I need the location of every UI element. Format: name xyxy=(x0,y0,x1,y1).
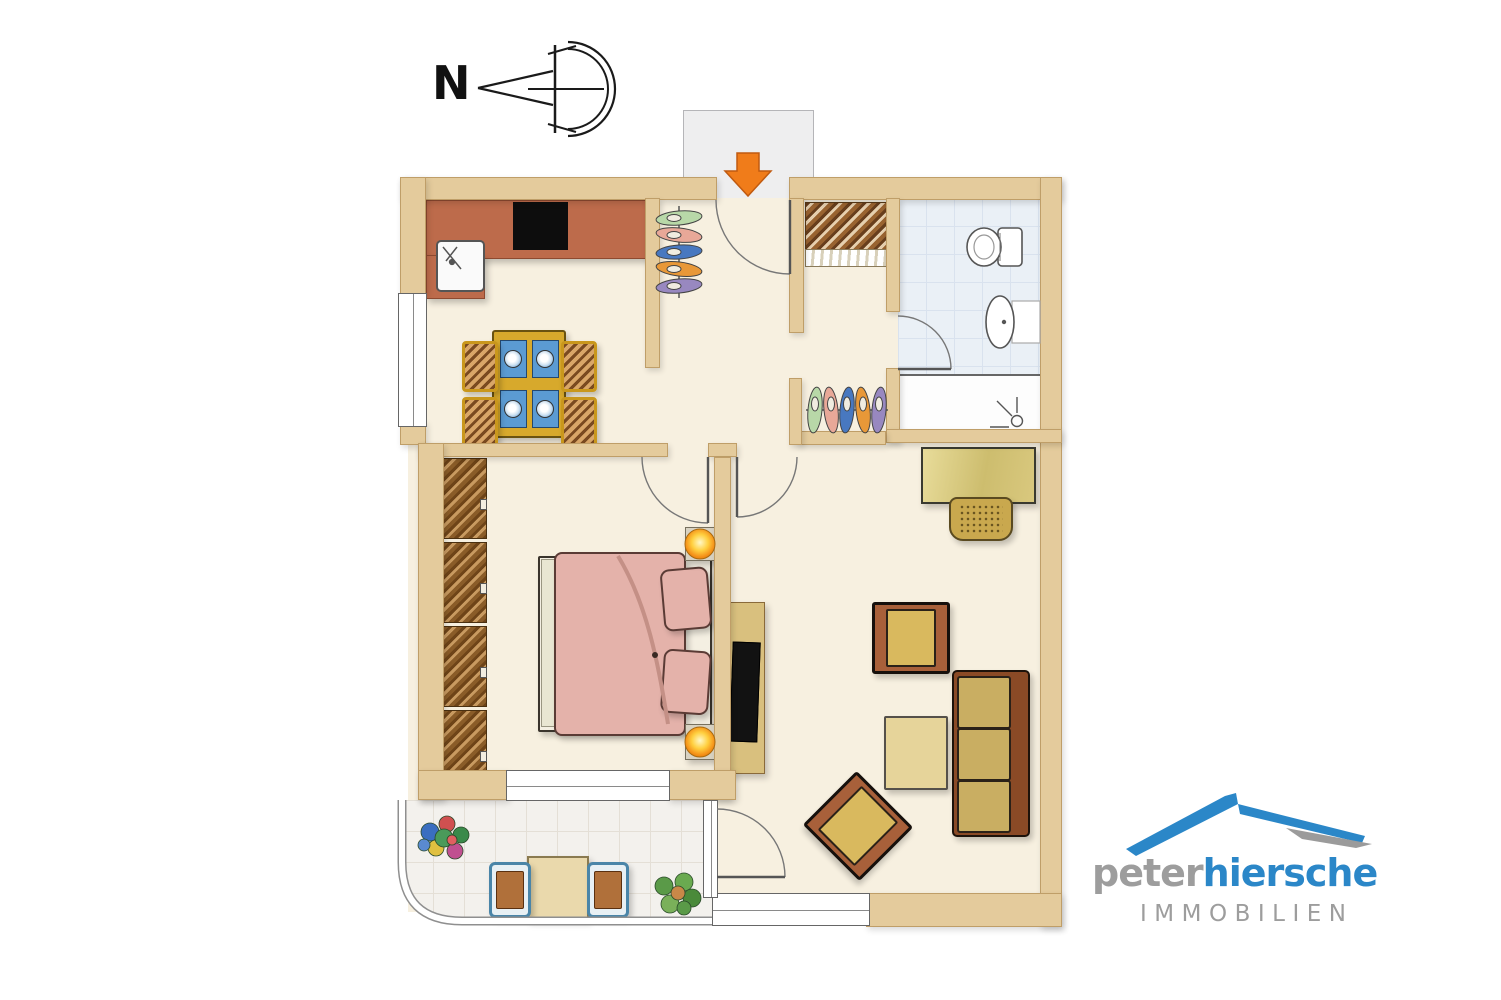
nightstand xyxy=(685,527,717,561)
wall-entry-right xyxy=(789,198,804,333)
desk-chair-back xyxy=(959,504,1003,534)
wall-bedroom-top xyxy=(418,443,668,457)
plate xyxy=(536,350,554,368)
wall-bedroom-bottom-left xyxy=(418,770,508,800)
floorplan-page: N xyxy=(0,0,1501,1000)
coffee-table xyxy=(884,716,948,790)
sofa xyxy=(952,670,1030,837)
dining-chair xyxy=(462,397,498,448)
armchair-cushion xyxy=(886,609,936,667)
balcony-chair-seat xyxy=(594,871,622,909)
tv-screen xyxy=(729,642,760,743)
kitchen-sink xyxy=(436,240,485,292)
place-setting xyxy=(500,390,527,428)
wall-top-right xyxy=(789,177,1062,200)
dining-chair xyxy=(561,341,597,392)
dining-chair xyxy=(462,341,498,392)
sofa-cushion xyxy=(957,676,1011,729)
wall-hall-bath-upper xyxy=(886,198,900,312)
wall-shoe-nook xyxy=(789,378,802,445)
plate xyxy=(536,400,554,418)
balcony-chair xyxy=(489,862,531,918)
brand-roof-icon xyxy=(1126,793,1372,856)
armchair xyxy=(872,602,950,674)
place-setting xyxy=(532,340,559,378)
wall-bedroom-bottom-right xyxy=(668,770,736,800)
living-room-window xyxy=(712,893,870,926)
bed-pillow xyxy=(660,648,712,715)
shower-area xyxy=(898,374,1042,432)
bathroom-floor xyxy=(898,198,1042,374)
wall-top-left xyxy=(400,177,717,200)
balcony-table xyxy=(527,856,589,920)
place-setting xyxy=(532,390,559,428)
stove-cooktop xyxy=(513,202,568,250)
brand-wordmark: peterhiersche xyxy=(1092,851,1377,895)
bed-pillow xyxy=(659,566,712,632)
compass-north-arrow-icon xyxy=(478,42,615,136)
wall-right-outer xyxy=(1040,177,1062,927)
compass-north-label: N xyxy=(432,56,471,110)
wall-bedroom-left xyxy=(418,443,444,800)
plate xyxy=(504,400,522,418)
balcony-chair-seat xyxy=(496,871,524,909)
sofa-cushion xyxy=(957,780,1011,833)
wall-center-cap xyxy=(708,443,737,457)
sofa-cushion xyxy=(957,728,1011,781)
nightstand xyxy=(685,724,717,760)
wall-living-bottom xyxy=(866,893,1062,927)
dining-table xyxy=(492,330,566,438)
wall-bath-bottom xyxy=(886,429,1062,443)
balcony-door-sidelight xyxy=(703,800,718,898)
brand-word-peter: peter xyxy=(1092,851,1203,895)
wall-bedroom-living xyxy=(714,457,731,800)
bedroom-window xyxy=(506,770,670,801)
brand-word-hiersche: hiersche xyxy=(1203,851,1378,895)
place-setting xyxy=(500,340,527,378)
wall-left-upper xyxy=(400,177,426,295)
desk xyxy=(921,447,1036,504)
plate xyxy=(504,350,522,368)
brand-subtitle: IMMOBILIEN xyxy=(1140,901,1353,927)
hall-closet-shelf xyxy=(805,249,888,267)
wall-below-shoes xyxy=(797,431,886,445)
wall-kitchen-hall xyxy=(645,198,660,368)
kitchen-window xyxy=(398,293,427,427)
desk-chair xyxy=(949,497,1013,541)
dining-chair xyxy=(561,397,597,448)
balcony-chair xyxy=(587,862,629,918)
hall-closet xyxy=(805,202,888,251)
